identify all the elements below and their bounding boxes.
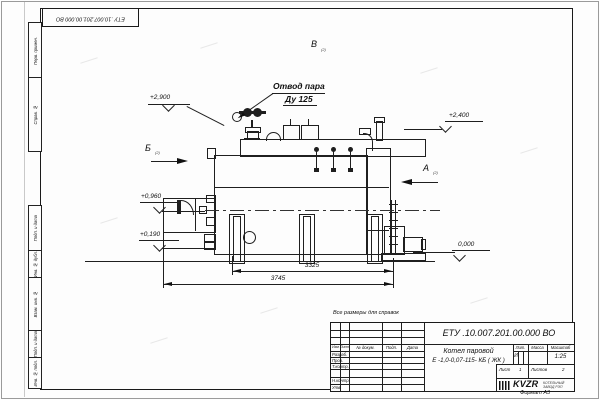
view-label-b-ref: (2) xyxy=(155,151,160,155)
manhole-circle xyxy=(243,231,256,244)
dimension-line-3745 xyxy=(163,284,393,285)
dimension-arrow xyxy=(384,282,392,286)
side-stamp-label: Подп. и дата xyxy=(33,331,38,357)
side-stamp-label: Подп. и дата xyxy=(33,215,38,241)
kvzr-logo-barcode xyxy=(499,381,511,390)
boiler-leg-inner xyxy=(233,216,241,262)
extension-line xyxy=(393,258,394,288)
sig-razrab: Разраб. xyxy=(332,353,347,357)
elevation-leader xyxy=(413,252,455,253)
callout-steam-line1: Отвод пара xyxy=(273,82,325,91)
level-gauge-foot xyxy=(348,168,353,172)
top-doc-stamp: ЕТУ .10.007.201.00.000 ВО xyxy=(42,8,139,27)
title-block-line xyxy=(331,330,424,331)
scale-value: 1:25 xyxy=(547,354,574,360)
title-block: Изм Лист № докум. Подп. Дата Разраб. Про… xyxy=(330,322,575,392)
valve-stem xyxy=(251,120,253,127)
view-label-a: А xyxy=(423,164,429,173)
lit-label: Лит. xyxy=(513,346,528,350)
product-name-1: Котел паровой xyxy=(424,348,513,355)
safety-valve-stem xyxy=(290,119,291,125)
pump-motor xyxy=(403,237,423,252)
sheet-number: 1 xyxy=(519,368,521,372)
col-izm: Изм xyxy=(331,346,340,350)
view-label-b: Б xyxy=(145,144,151,153)
side-stamp-sprav-no: Справ. № xyxy=(28,77,42,152)
side-stamp-vzam-inv: Взам. инв. № xyxy=(28,277,42,332)
dimension-text-3745: 3745 xyxy=(238,276,318,283)
elevation-text-0190: +0,190 xyxy=(140,232,160,239)
elevation-text-0960: +0,960 xyxy=(141,194,161,201)
sig-utv: Утв. xyxy=(332,386,342,390)
company-line-2: ЗАВОД РЭП xyxy=(543,386,562,389)
boiler-leg-inner xyxy=(371,216,379,262)
boiler-centerline xyxy=(205,210,440,211)
level-gauge-foot xyxy=(331,168,336,172)
view-arrow-a xyxy=(401,179,412,185)
title-block-line xyxy=(331,384,424,385)
kvzr-logo-text: KVZR xyxy=(513,380,538,389)
top-doc-number: ЕТУ .10.007.201.00.000 ВО xyxy=(56,15,125,21)
dimension-arrow xyxy=(384,269,392,273)
doc-number: ЕТУ .10.007.201.00.000 ВО xyxy=(424,329,574,338)
extension-line xyxy=(163,233,164,288)
elevation-leader xyxy=(404,129,442,130)
col-doc: № докум. xyxy=(349,346,382,350)
drum-dome xyxy=(266,132,281,141)
callout-steam-line2: Ду 125 xyxy=(285,95,313,104)
elevation-shelf xyxy=(445,121,483,122)
side-stamp-inv-podl: Инв. № подл. xyxy=(28,357,42,389)
col-list: Лист xyxy=(340,346,349,350)
pipe-flange-tick xyxy=(389,220,398,221)
side-stamp-label: Взам. инв. № xyxy=(33,291,38,317)
view-arrow-line xyxy=(412,182,438,183)
dimension-arrow xyxy=(164,282,172,286)
feed-pump xyxy=(384,226,405,255)
dimension-arrow xyxy=(233,269,241,273)
col-data: Дата xyxy=(401,346,424,350)
boiler-body-seam-line xyxy=(214,187,389,188)
front-flange xyxy=(207,148,216,159)
elevation-text-2400: +2,400 xyxy=(449,113,469,120)
safety-valve-box xyxy=(301,125,319,140)
format-label: Формат А3 xyxy=(520,391,550,397)
view-arrow-b xyxy=(177,158,188,164)
elevation-leader xyxy=(162,248,215,249)
burner-box-divider xyxy=(195,198,196,231)
title-block-line xyxy=(523,351,524,364)
title-block-line xyxy=(331,369,424,370)
callout-shelf xyxy=(283,105,317,106)
side-stamp-podp-data-2: Подп. и дата xyxy=(28,330,42,359)
ground-line xyxy=(85,261,435,262)
safety-valve-box xyxy=(283,125,300,140)
elevation-leader xyxy=(162,211,205,212)
pump-motor-cap xyxy=(421,239,426,250)
burner-fitting xyxy=(199,206,207,214)
sig-nkontr: Н.контр. xyxy=(332,379,350,383)
view-arrow-line xyxy=(151,161,179,162)
sheets-number: 2 xyxy=(562,368,564,372)
scale-label: Масштаб xyxy=(547,346,574,350)
title-block-line xyxy=(331,357,424,358)
boiler-leg-inner xyxy=(303,216,311,262)
title-block-line xyxy=(331,337,424,338)
valve-base-flange xyxy=(244,138,260,140)
level-gauge-knob xyxy=(348,147,353,152)
title-block-line xyxy=(496,364,574,365)
side-stamp-inv-dubl: Инв. № дубл. xyxy=(28,250,42,279)
mass-label: Масса xyxy=(528,346,547,350)
pump-base-plate xyxy=(381,253,426,261)
level-gauge-knob xyxy=(331,147,336,152)
pipe-flange-tick xyxy=(389,204,398,205)
level-gauge-knob xyxy=(314,147,319,152)
view-label-a-ref: (2) xyxy=(433,171,438,175)
dimension-text-3325: 3325 xyxy=(272,263,352,270)
side-stamp-label: Инв. № дубл. xyxy=(33,251,38,277)
side-stamp-label: Перв. примен. xyxy=(33,37,38,65)
sig-prov: Пров. xyxy=(332,359,343,363)
side-stamp-perv-primen: Перв. примен. xyxy=(28,22,42,79)
view-label-v-ref: (2) xyxy=(321,48,326,52)
side-stamp-podp-data-1: Подп. и дата xyxy=(28,205,42,252)
sheet-label: Лист xyxy=(499,368,510,372)
side-stamp-label: Справ. № xyxy=(33,105,38,125)
title-block-line xyxy=(528,364,529,378)
sheets-label: Листов xyxy=(531,368,547,372)
front-flange xyxy=(206,217,216,226)
dimension-line-3325 xyxy=(232,271,393,272)
view-label-v: В xyxy=(311,40,317,49)
sig-tkontr: Т.контр. xyxy=(332,365,349,369)
reference-note: Все размеры для справок xyxy=(333,311,399,317)
side-stamp-label: Инв. № подл. xyxy=(33,360,38,386)
drawing-sheet: ЕТУ .10.007.201.00.000 ВО Перв. примен. … xyxy=(0,0,600,400)
safety-valve-stem xyxy=(308,119,309,125)
level-gauge-foot xyxy=(314,168,319,172)
gauge-pipe xyxy=(376,121,383,141)
front-flange xyxy=(204,234,216,242)
col-podp: Подп. xyxy=(382,346,401,350)
elevation-text-0000: 0,000 xyxy=(458,242,474,249)
lit-value: И xyxy=(513,354,519,359)
sheet-edge-line xyxy=(24,2,25,397)
pipe-flange-tick xyxy=(389,212,398,213)
front-flange xyxy=(206,195,216,203)
